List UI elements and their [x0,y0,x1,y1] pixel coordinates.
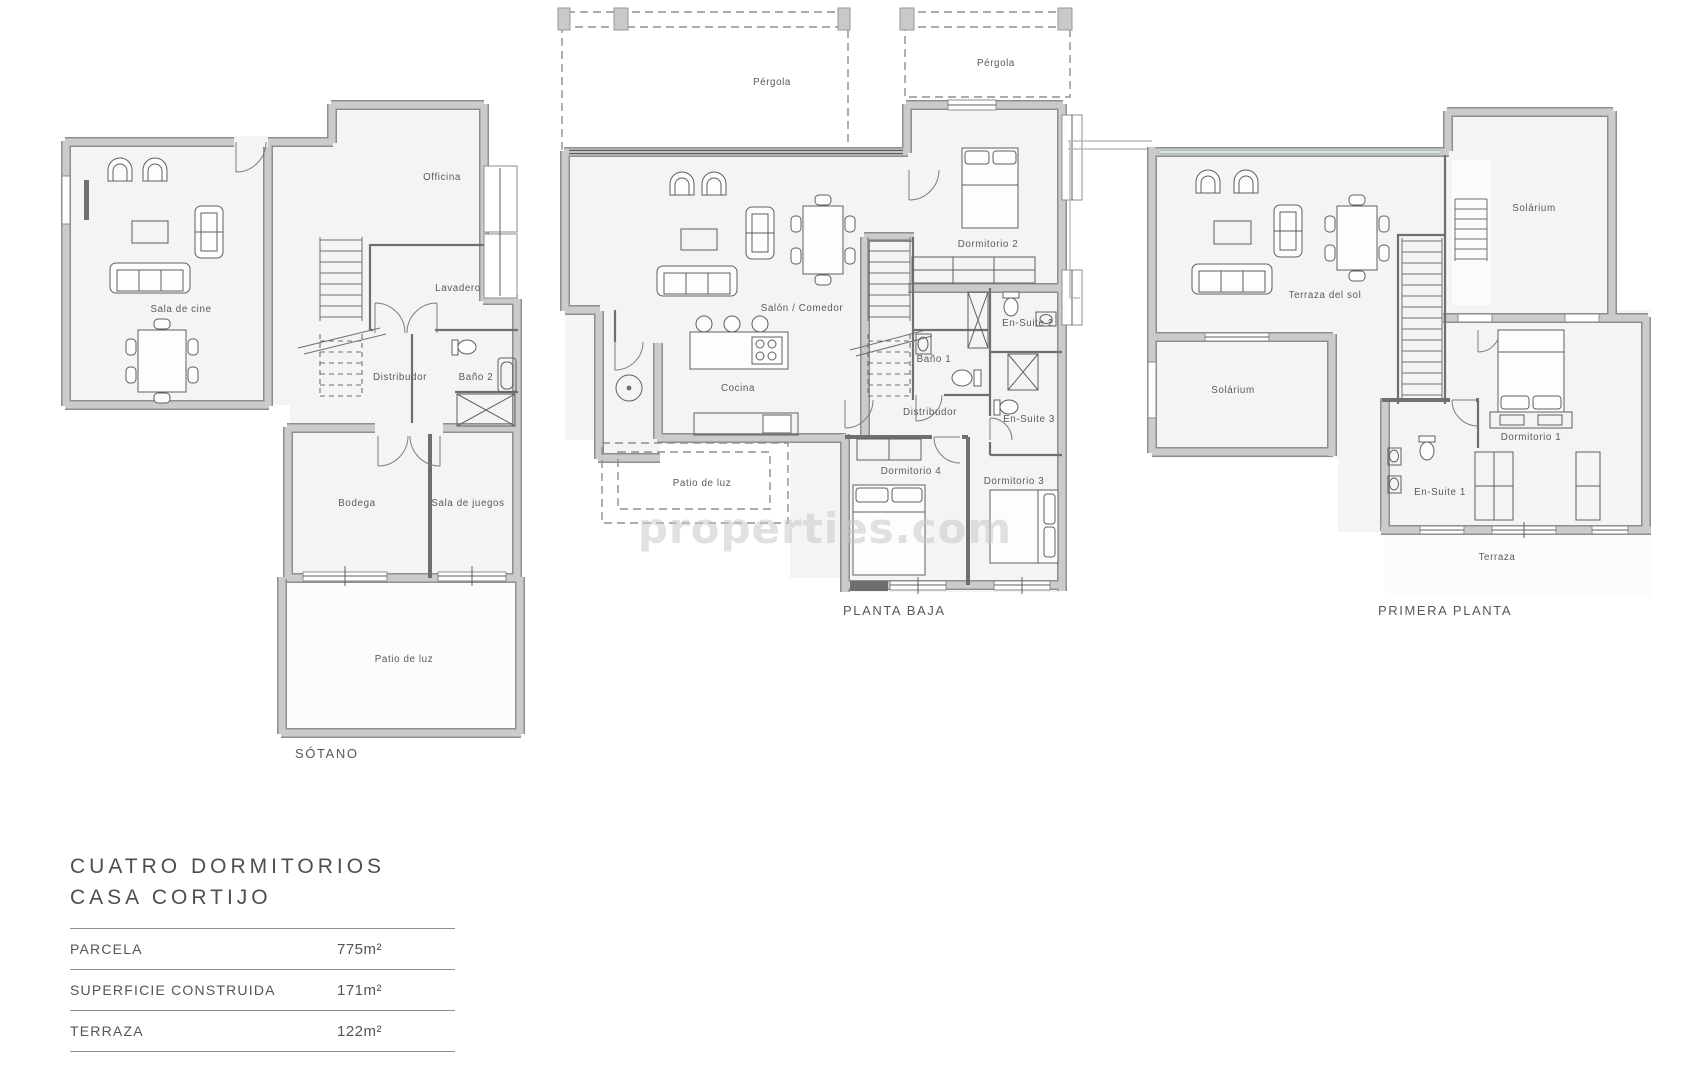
legend-row-parcela: PARCELA 775m² [70,928,455,969]
legend-value: 775m² [337,941,455,958]
legend-label: SUPERFICIE CONSTRUIDA [70,982,337,998]
legend: CUATRO DORMITORIOS CASA CORTIJO PARCELA … [70,851,455,1052]
floorplan-sheet: { "watermark": { "text": "properties.com… [0,0,1700,1080]
stool [752,316,768,332]
room-label-terraza-del-sol: Terraza del sol [1289,290,1362,301]
room-label-dormitorio-4: Dormitorio 4 [881,466,942,477]
floor-plan-sotano: Sala de cine Officina Lavadero Distribud… [62,104,521,735]
room-label-salon-comedor: Salón / Comedor [761,303,844,314]
sofa [657,266,737,296]
armchair [1234,170,1258,193]
room-label-en-suite-3: En-Suite 3 [1003,414,1055,425]
caption-sotano: SÓTANO [295,746,359,761]
loveseat [1274,205,1302,257]
armchair [702,172,726,195]
bed [1498,330,1564,412]
staircase-solarium [1452,160,1490,305]
room-label-bano-1: Baño 1 [917,354,952,365]
stool [724,316,740,332]
room-label-bodega: Bodega [338,498,375,509]
room-label-distribudor: Distribudor [903,407,957,418]
room-label-pergola-1: Pérgola [753,77,791,88]
toilet-tank [994,400,1000,415]
armchair [143,158,167,181]
appliance [763,415,791,433]
room-label-bano-2: Baño 2 [459,372,494,383]
caption-primera-planta: PRIMERA PLANTA [1378,603,1512,618]
toilet-bowl [1000,400,1018,414]
room-label-patio-de-luz: Patio de luz [375,654,433,665]
sofa [1192,264,1272,294]
armchair [670,172,694,195]
legend-table: PARCELA 775m² SUPERFICIE CONSTRUIDA 171m… [70,928,455,1052]
toilet-tank [452,340,458,355]
kitchen-island [690,332,788,369]
room-label-solarium-top: Solárium [1512,203,1555,214]
armchair [1196,170,1220,193]
loveseat [195,206,223,258]
tv-screen [84,180,89,220]
toilet-bowl [952,370,972,386]
watermark: properties.com [630,504,1020,553]
legend-row-superficie: SUPERFICIE CONSTRUIDA 171m² [70,969,455,1010]
toilet-bowl [1420,442,1434,460]
legend-row-terraza: TERRAZA 122m² [70,1010,455,1052]
floor-areas [66,105,520,735]
room-label-dormitorio-1: Dormitorio 1 [1501,432,1562,443]
room-label-en-suite-2: En-Suite 2 [1002,318,1054,329]
room-label-sala-de-cine: Sala de cine [150,304,211,315]
room-label-en-suite-1: En-Suite 1 [1414,487,1466,498]
stool [696,316,712,332]
toilet-tank [974,370,981,386]
room-label-distribudor: Distribudor [373,372,427,383]
toilet-tank [1419,436,1435,442]
room-label-dormitorio-2: Dormitorio 2 [958,239,1019,250]
loveseat [746,207,774,259]
legend-value: 171m² [337,982,455,999]
legend-value: 122m² [337,1023,455,1040]
room-label-pergola-2: Pérgola [977,58,1015,69]
armchair [108,158,132,181]
room-label-lavadero: Lavadero [435,283,481,294]
toilet-bowl [1004,298,1018,316]
room-label-dormitorio-3: Dormitorio 3 [984,476,1045,487]
toilet-bowl [458,340,476,354]
room-label-solarium-left: Solárium [1211,385,1254,396]
legend-title-line2: CASA CORTIJO [70,882,455,913]
bed [962,148,1018,228]
legend-label: PARCELA [70,941,337,957]
room-label-cocina: Cocina [721,383,755,394]
room-label-terraza: Terraza [1479,552,1516,563]
room-label-sala-de-juegos: Sala de juegos [431,498,504,509]
floor-plan-primera-planta: Terraza del sol Solárium Solárium Dormit… [1068,108,1652,598]
toilet-tank [1003,292,1019,298]
room-label-officina: Officina [423,172,461,183]
sofa [110,263,190,293]
caption-planta-baja: PLANTA BAJA [843,603,946,618]
legend-label: TERRAZA [70,1023,337,1039]
legend-title-line1: CUATRO DORMITORIOS [70,851,455,882]
room-label-patio-de-luz: Patio de luz [673,478,731,489]
